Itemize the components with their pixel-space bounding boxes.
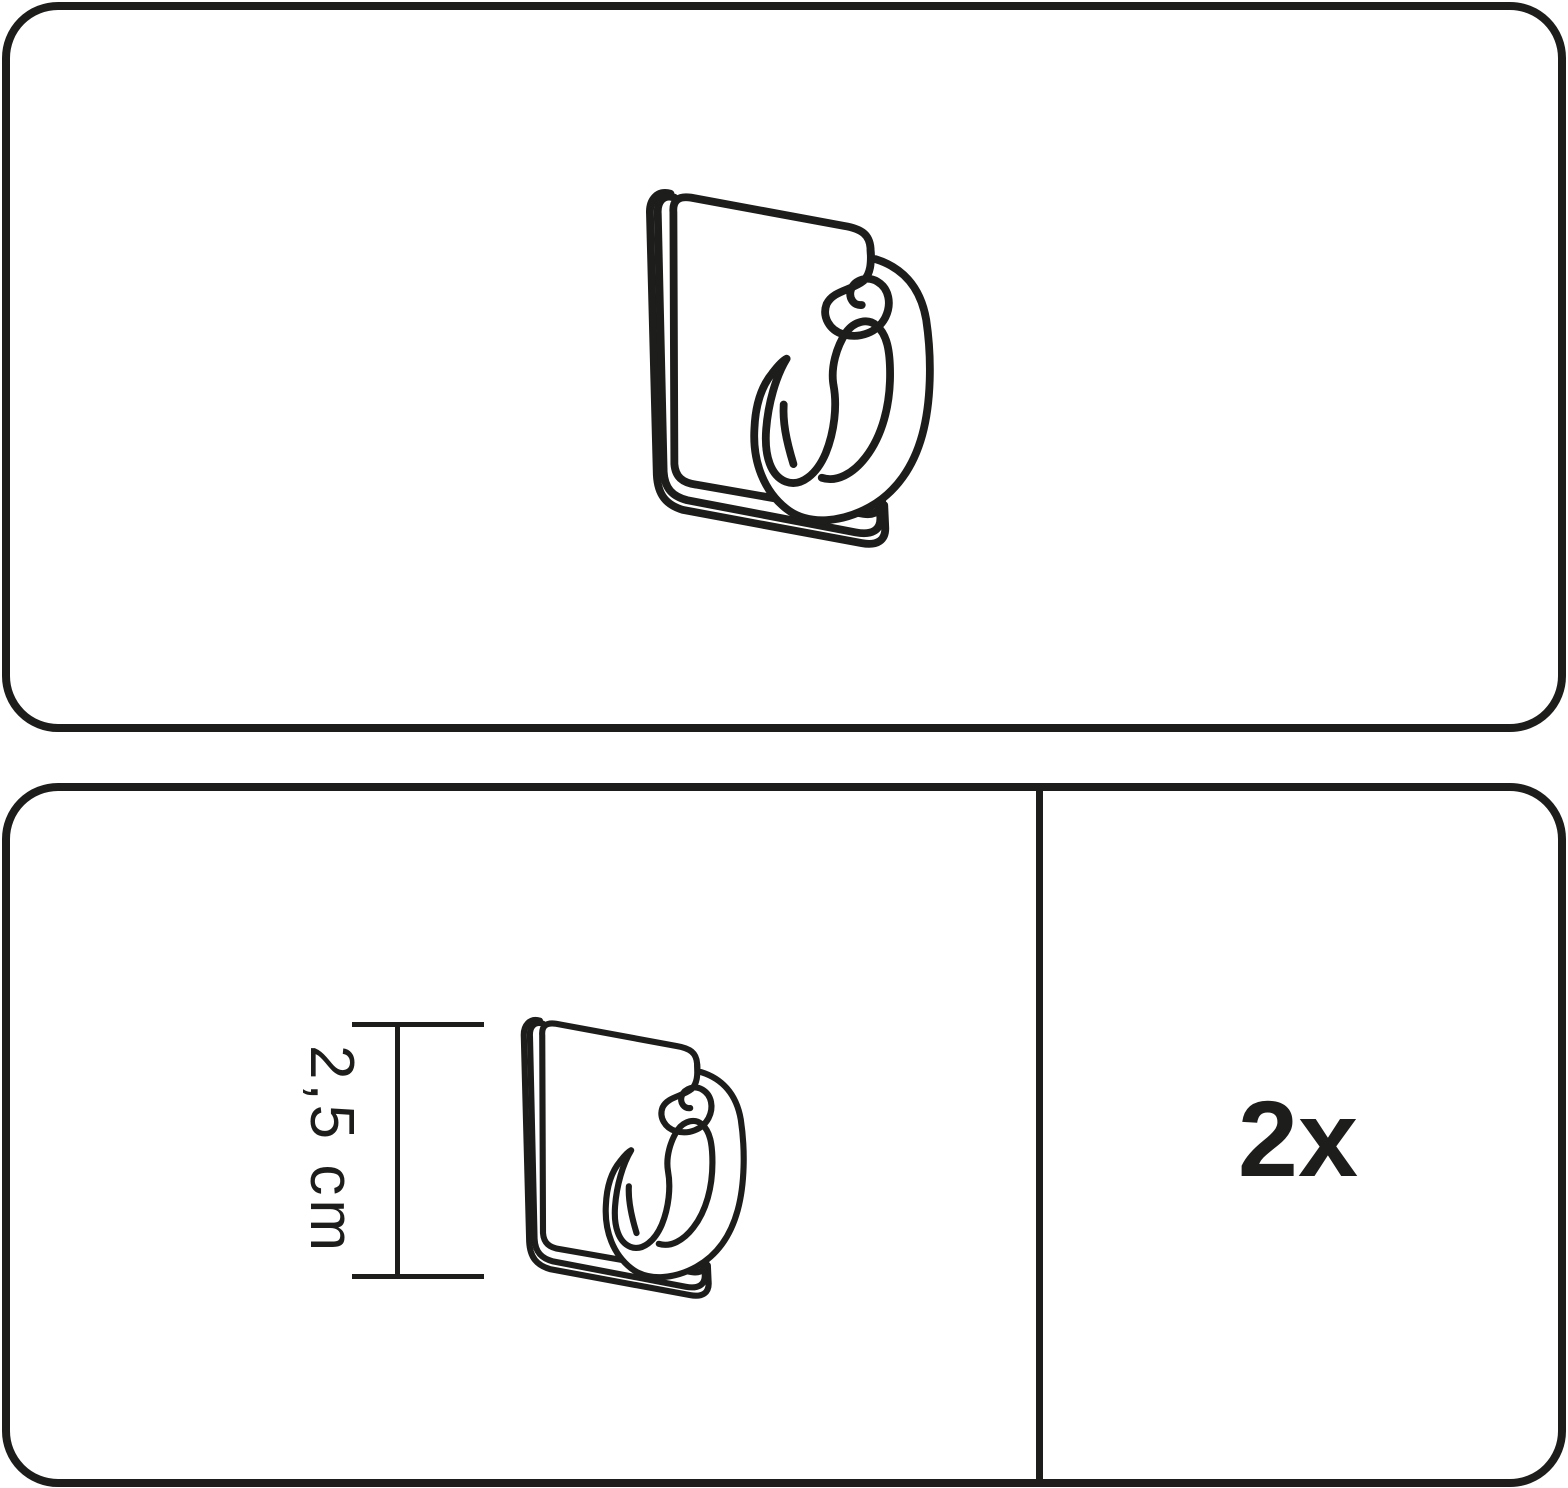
dimension-cap-top xyxy=(352,1022,484,1027)
quantity-label: 2x xyxy=(1036,1078,1560,1198)
dimension-extent-line xyxy=(395,1024,400,1277)
adhesive-hook-icon xyxy=(520,1012,750,1300)
dimension-label: 2,5 cm xyxy=(299,1020,363,1280)
dimension-cap-bottom xyxy=(352,1274,484,1279)
adhesive-hook-icon xyxy=(645,183,938,549)
